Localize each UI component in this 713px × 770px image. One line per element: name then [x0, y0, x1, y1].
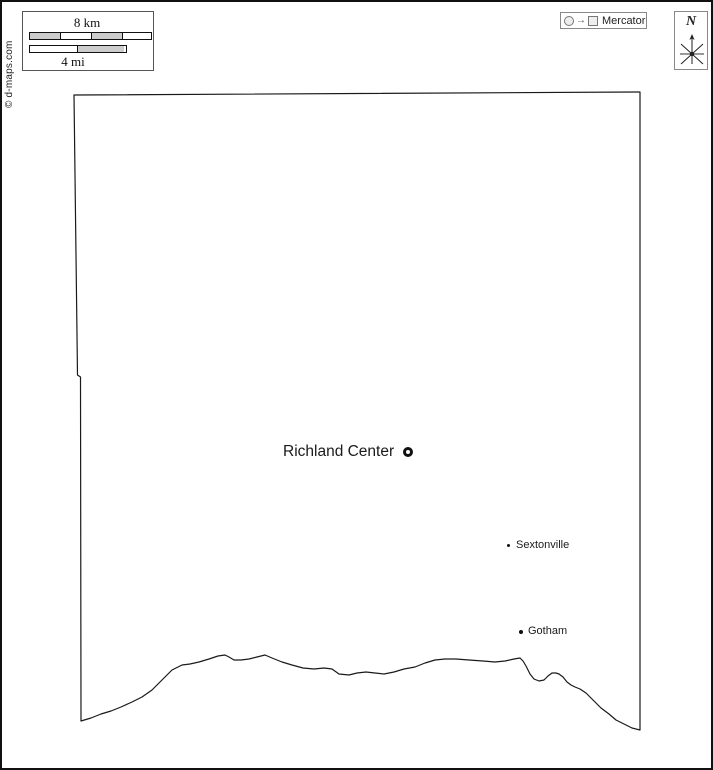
town-dot-marker-sextonville	[507, 544, 510, 547]
place-label-gotham: Gotham	[528, 625, 567, 637]
place-label-sextonville: Sextonville	[516, 539, 569, 551]
place-label-richland-center: Richland Center	[283, 443, 394, 461]
town-dot-marker-gotham	[519, 630, 523, 634]
page-frame: © d-maps.com 8 km 4 mi → Mercator N	[0, 0, 713, 770]
city-ring-marker-richland-center	[403, 447, 413, 457]
county-outline-map	[2, 2, 713, 770]
